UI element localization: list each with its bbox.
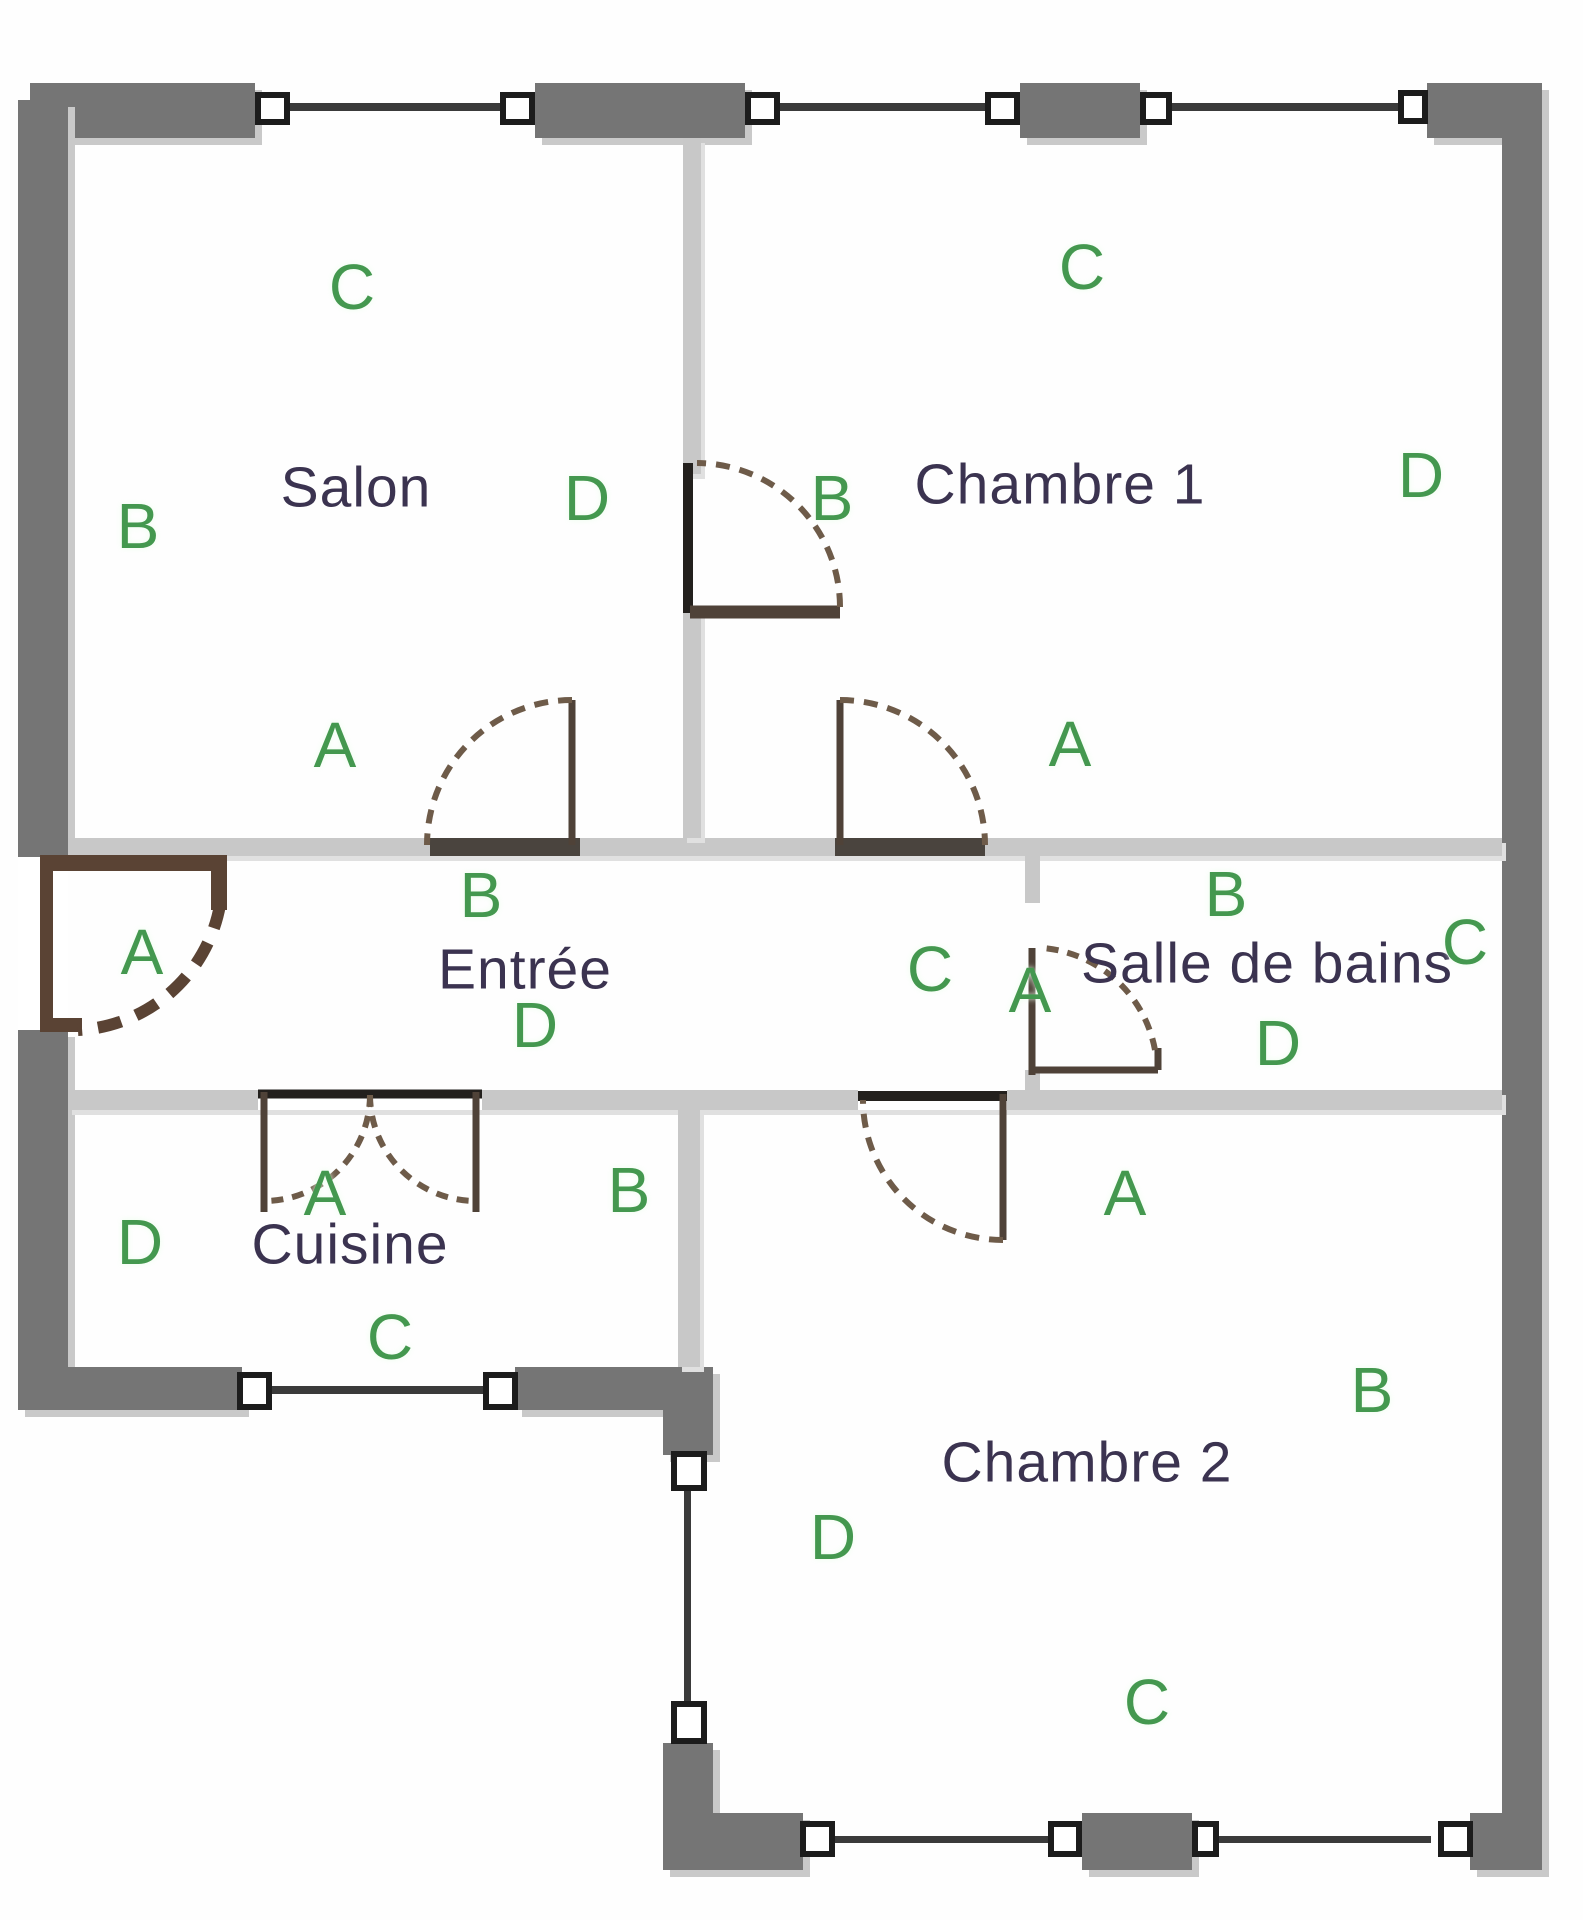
- orientation-letter-b-salon: B: [117, 489, 160, 563]
- orientation-letter-b-salle-de-bains: B: [1205, 857, 1248, 931]
- orientation-letter-b-chambre-1: B: [811, 461, 854, 535]
- orientation-letter-b-cuisine: B: [608, 1153, 651, 1227]
- orientation-letter-c-chambre-2: C: [1124, 1665, 1170, 1739]
- orientation-letter-c-cuisine: C: [367, 1300, 413, 1374]
- room-label-salon: Salon: [281, 454, 432, 520]
- orientation-letter-d-chambre-2: D: [810, 1500, 856, 1574]
- orientation-letter-d-chambre-1: D: [1398, 438, 1444, 512]
- orientation-letter-a-salon: A: [314, 708, 357, 782]
- bedroom2-door-arc: [863, 1100, 1003, 1240]
- kitchen-door-arc-right: [370, 1095, 476, 1201]
- orientation-letter-c-chambre-1: C: [1059, 230, 1105, 304]
- orientation-letter-b-entree: B: [460, 858, 503, 932]
- orientation-letter-a-chambre-2: A: [1104, 1156, 1147, 1230]
- room-label-salle-de-bains: Salle de bains: [1081, 930, 1453, 996]
- room-label-chambre-1: Chambre 1: [915, 451, 1206, 517]
- orientation-letter-d-cuisine: D: [117, 1205, 163, 1279]
- orientation-letter-a-chambre-1: A: [1049, 707, 1092, 781]
- bedroom1-door-arc: [840, 700, 985, 845]
- orientation-letter-a-entree: A: [121, 915, 164, 989]
- room-label-chambre-2: Chambre 2: [942, 1429, 1233, 1495]
- salon-door-arc: [427, 700, 572, 845]
- orientation-letter-a-cuisine: A: [304, 1156, 347, 1230]
- orientation-letter-b-chambre-2: B: [1351, 1353, 1394, 1427]
- orientation-letter-c-salon: C: [329, 250, 375, 324]
- orientation-letter-d-salle-de-bains: D: [1255, 1006, 1301, 1080]
- orientation-letter-c-entree: C: [907, 932, 953, 1006]
- orientation-letter-a-salle-de-bains: A: [1009, 953, 1052, 1027]
- orientation-letter-d-entree: D: [512, 988, 558, 1062]
- floorplan-canvas: SalonCBDAChambre 1CBDAEntréeABCDSalle de…: [0, 0, 1583, 1920]
- orientation-letter-d-salon: D: [564, 461, 610, 535]
- orientation-letter-c-salle-de-bains: C: [1442, 905, 1488, 979]
- room-label-cuisine: Cuisine: [251, 1211, 448, 1277]
